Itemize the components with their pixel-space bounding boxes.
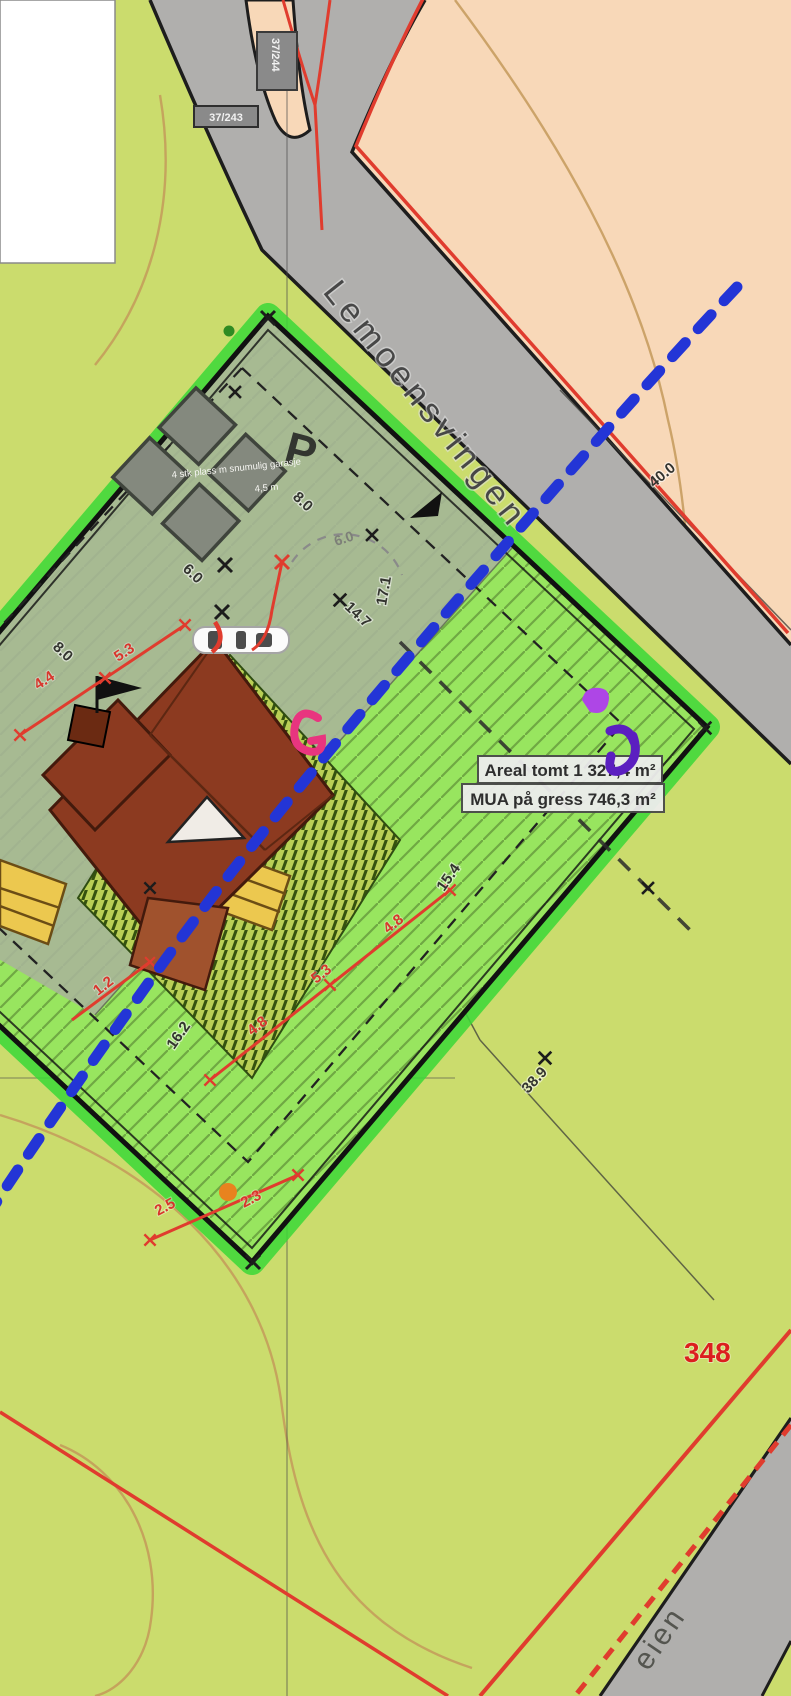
car-symbol [193, 627, 289, 653]
parcel-tag-vertical: 37/244 [257, 32, 297, 90]
parcel-tag-horizontal: 37/243 [194, 106, 258, 127]
area-label-line2: MUA på gress 746,3 m² [470, 790, 656, 809]
green-point [224, 326, 235, 337]
road-number-label: 348 [684, 1337, 731, 1368]
white-panel [0, 0, 115, 263]
orange-point [219, 1183, 237, 1201]
site-plan-map: P 4 stk plass m snumulig garasje 4,5 m [0, 0, 791, 1696]
chimney [68, 705, 110, 747]
parcel-tag-vertical-label: 37/244 [269, 38, 281, 73]
parcel-tag-horizontal-label: 37/243 [209, 112, 243, 124]
